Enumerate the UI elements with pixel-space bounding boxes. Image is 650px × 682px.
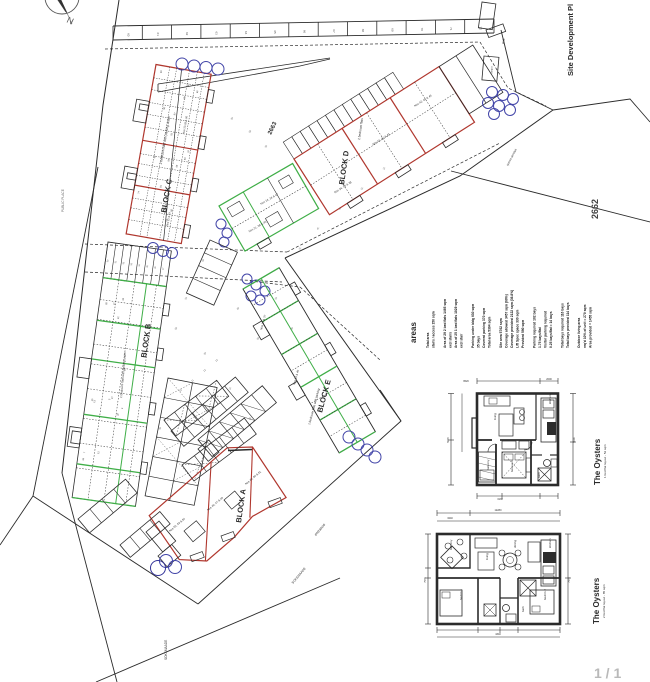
svg-text:12280: 12280 <box>495 509 503 512</box>
svg-text:2662: 2662 <box>590 199 600 219</box>
svg-text:excl stairs: excl stairs <box>448 332 452 348</box>
svg-text:4340: 4340 <box>495 633 501 636</box>
svg-text:living: living <box>485 553 489 560</box>
svg-text:Total area: Total area <box>426 333 430 348</box>
svg-text:Parking under bldg 630 sqm: Parking under bldg 630 sqm <box>471 304 475 348</box>
svg-text:61: 61 <box>156 33 160 37</box>
svg-text:balcony: balcony <box>486 459 490 470</box>
svg-text:bedroom: bedroom <box>510 460 514 472</box>
svg-text:areas: areas <box>409 322 418 343</box>
svg-text:7570: 7570 <box>568 577 571 583</box>
svg-text:2 bed flat layout - 85 sqm: 2 bed flat layout - 85 sqm <box>602 584 606 618</box>
svg-text:The Oysters: The Oysters <box>592 577 601 624</box>
svg-text:Area provided = 1455 sqm: Area provided = 1455 sqm <box>588 307 592 348</box>
svg-text:bedrm 2: bedrm 2 <box>543 589 547 600</box>
svg-text:0.25 bays/flat = 14 bays: 0.25 bays/flat = 14 bays <box>549 311 553 348</box>
svg-text:Area of 25 1 bed flats 1029: Area of 25 1 bed flats 1029 sqm <box>454 299 458 348</box>
svg-text:Site area 5762 sqm: Site area 5762 sqm <box>499 318 503 348</box>
svg-text:62: 62 <box>185 32 189 36</box>
svg-text:2000: 2000 <box>546 378 552 381</box>
svg-text:69: 69 <box>390 28 394 32</box>
svg-text:Total bays provided 114 bays: Total bays provided 114 bays <box>566 302 570 348</box>
svg-text:excl stair: excl stair <box>460 333 464 348</box>
svg-text:5070: 5070 <box>447 437 450 443</box>
svg-text:65: 65 <box>273 30 277 34</box>
svg-text:Provided 590 sqm: Provided 590 sqm <box>521 320 525 348</box>
svg-text:Visitor parking required: Visitor parking required <box>544 311 548 348</box>
svg-text:PUBLIC PLACE: PUBLIC PLACE <box>61 189 65 212</box>
svg-text:dining: dining <box>513 540 517 548</box>
svg-text:bedrm 1: bedrm 1 <box>459 589 463 600</box>
svg-text:5000: 5000 <box>573 437 576 443</box>
svg-text:The Oysters: The Oysters <box>593 438 602 485</box>
svg-text:Total bays required 116 bays: Total bays required 116 bays <box>560 303 564 348</box>
svg-text:Outdoor living area: Outdoor living area <box>577 318 581 348</box>
svg-text:bath: bath <box>521 606 525 612</box>
svg-text:Coverage provided 2122 sqm (3: Coverage provided 2122 sqm (36.8%) <box>510 290 514 348</box>
svg-text:67: 67 <box>332 29 336 33</box>
svg-text:64: 64 <box>244 31 248 35</box>
svg-text:req'd 10% of unit = 270 sqm: req'd 10% of unit = 270 sqm <box>583 305 587 348</box>
svg-text:1.75 bays/flat: 1.75 bays/flat <box>538 326 542 348</box>
svg-text:Coverage allowed 3457 sqm (: Coverage allowed 3457 sqm (60%) <box>504 294 508 348</box>
svg-text:living: living <box>493 413 497 420</box>
svg-text:kitchen: kitchen <box>548 538 552 548</box>
svg-text:kitchen: kitchen <box>548 394 552 404</box>
svg-text:Site Development Pl: Site Development Pl <box>566 4 575 76</box>
svg-text:Covered parking 370 sqm: Covered parking 370 sqm <box>482 308 486 348</box>
svg-text:Total area 5304 sqm: Total area 5304 sqm <box>488 317 492 348</box>
svg-text:3130: 3130 <box>497 498 503 501</box>
svg-text:Parking required 102 bays: Parking required 102 bays <box>532 307 536 348</box>
svg-text:SOKSMAADE: SOKSMAADE <box>164 640 168 660</box>
svg-text:7570: 7570 <box>424 577 427 583</box>
svg-text:Area of 29 2 bed flats 1465: Area of 29 2 bed flats 1465 sqm <box>443 299 447 348</box>
svg-text:35 bays: 35 bays <box>476 336 480 348</box>
svg-text:bath: bath <box>537 472 541 478</box>
svg-text:1 / 1: 1 / 1 <box>594 665 621 681</box>
svg-text:stairs / access 150 sqm: stairs / access 150 sqm <box>432 311 436 348</box>
svg-text:71: 71 <box>449 27 453 31</box>
svg-text:Lift Spec space 330 sqm: Lift Spec space 330 sqm <box>516 310 520 348</box>
svg-text:63: 63 <box>215 31 219 35</box>
svg-text:68: 68 <box>361 29 365 33</box>
svg-text:66: 66 <box>303 30 307 34</box>
svg-text:1 bed flat layout - 52 sqm: 1 bed flat layout - 52 sqm <box>603 444 607 478</box>
svg-text:9520: 9520 <box>463 380 469 383</box>
svg-text:70: 70 <box>420 28 424 32</box>
svg-text:60: 60 <box>127 33 131 37</box>
svg-text:balcony: balcony <box>449 539 453 550</box>
svg-text:3240: 3240 <box>447 517 453 520</box>
